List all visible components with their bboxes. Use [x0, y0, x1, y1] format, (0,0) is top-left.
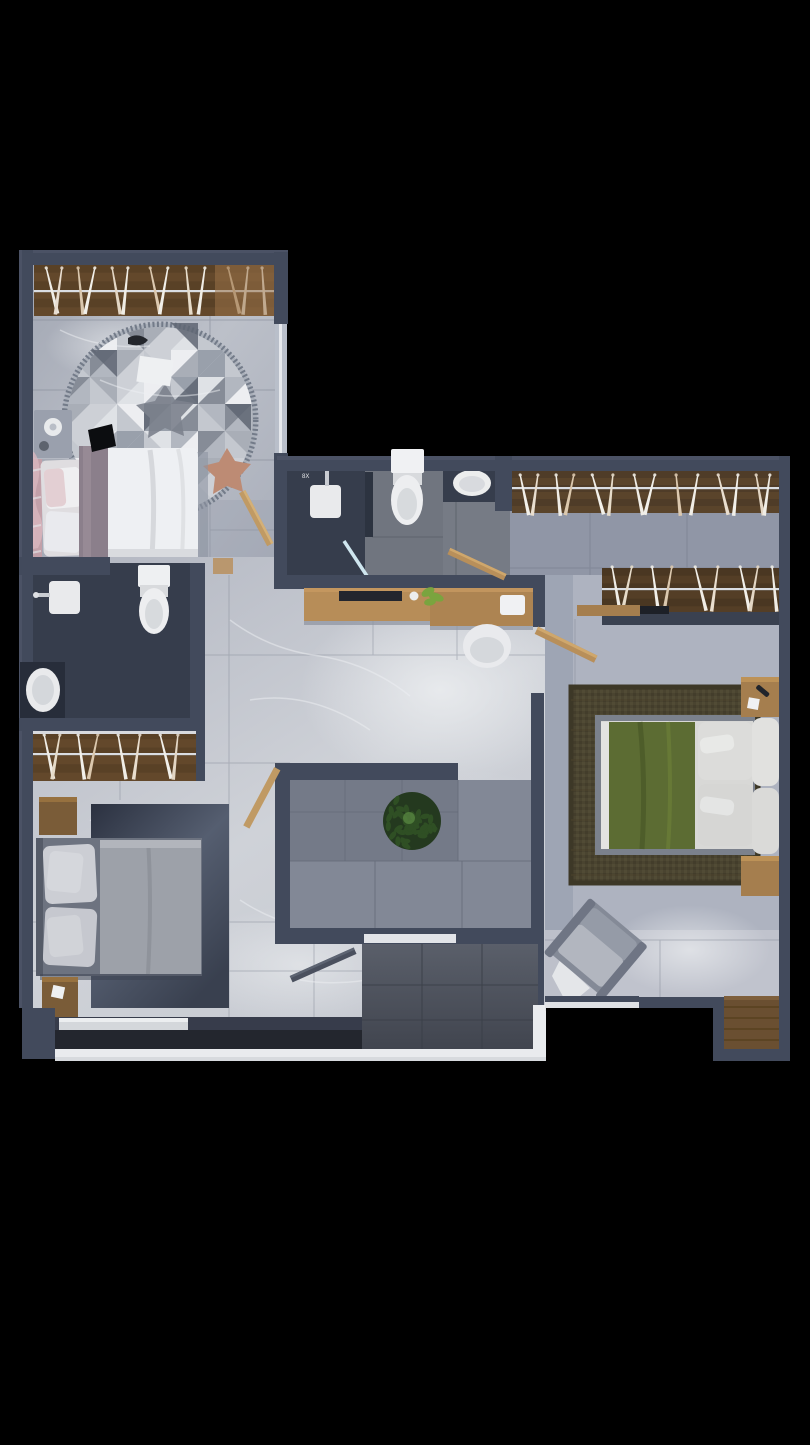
svg-text:8X: 8X [302, 474, 309, 480]
